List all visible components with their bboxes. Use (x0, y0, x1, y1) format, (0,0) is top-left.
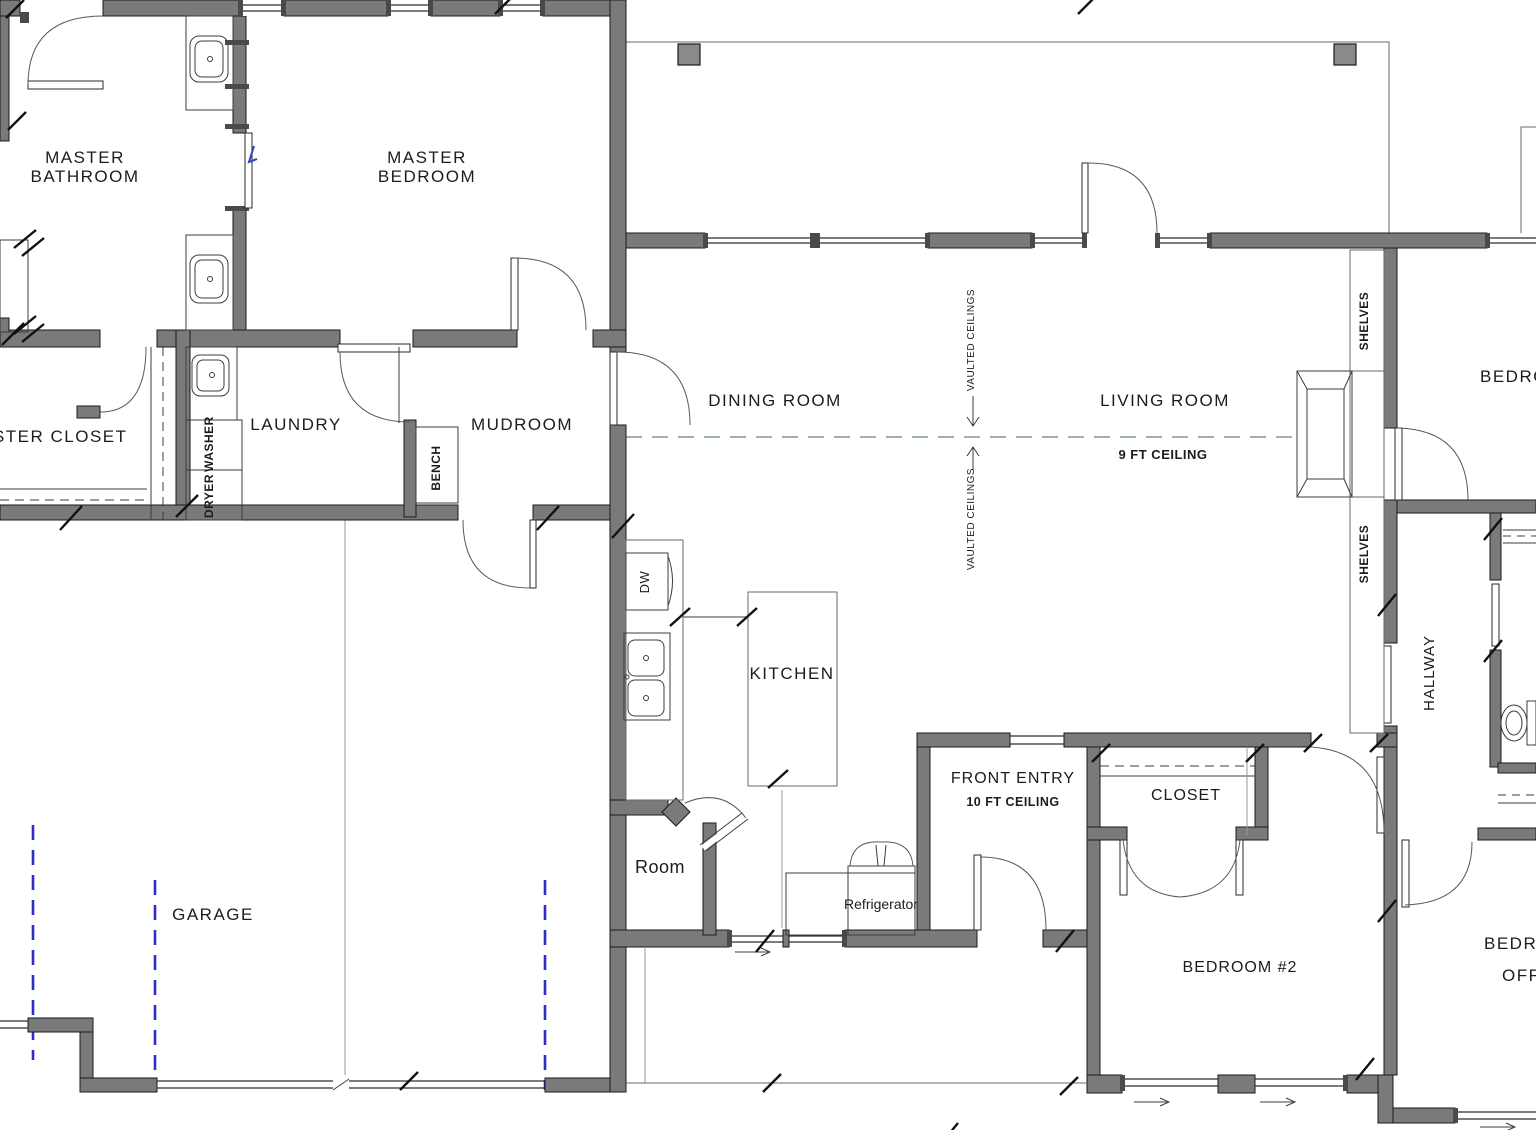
vaulted-ceiling-arrows (967, 396, 979, 470)
room-label-master-bedroom-1: MASTER (387, 148, 467, 167)
floor-plan-svg: MASTER BATHROOM MASTER BEDROOM MASTER CL… (0, 0, 1536, 1130)
walkway-lines (400, 947, 1087, 1092)
room-label-dining-room: DINING ROOM (708, 391, 842, 410)
label-refrigerator: Refrigerator (844, 896, 918, 912)
kitchen-island (748, 592, 837, 786)
label-washer: WASHER (202, 416, 216, 472)
toilet (1501, 701, 1536, 745)
note-10ft-ceiling: 10 FT CEILING (966, 795, 1059, 809)
room-label-front-entry: FRONT ENTRY (951, 770, 1075, 787)
room-label-master-bathroom-1: MASTER (45, 148, 125, 167)
patio-roof-outline (626, 42, 1536, 233)
right-closet-shelves (1498, 530, 1536, 803)
room-label-master-bedroom-2: BEDROOM (378, 167, 476, 186)
room-label-mudroom: MUDROOM (471, 415, 573, 434)
room-label-garage: GARAGE (172, 905, 254, 924)
window-arrows (735, 948, 1515, 1130)
windows (0, 0, 1536, 1123)
room-label-bedroom-2: BEDROOM #2 (1183, 959, 1298, 976)
label-dryer: DRYER (202, 474, 216, 518)
note-9ft-ceiling: 9 FT CEILING (1118, 447, 1207, 462)
refrigerator (786, 842, 915, 935)
label-vaulted-ceilings-top: VAULTED CEILINGS (966, 289, 977, 391)
room-label-master-closet: MASTER CLOSET (0, 427, 128, 446)
room-label-living-room: LIVING ROOM (1100, 391, 1230, 410)
patio-post-icon (678, 44, 700, 65)
label-vaulted-ceilings-bottom: VAULTED CEILINGS (966, 468, 977, 570)
garage-door-tracks (33, 825, 545, 1090)
room-label-closet: CLOSET (1151, 787, 1221, 804)
room-label-bedroom-office-1: BEDROOM (1484, 934, 1536, 953)
floor-plan-page: MASTER BATHROOM MASTER BEDROOM MASTER CL… (0, 0, 1536, 1130)
room-label-bedroom-office-2: OFFICE (1502, 966, 1536, 985)
walls (0, 0, 1536, 1123)
room-label-hallway: HALLWAY (1421, 635, 1438, 711)
label-shelves-top: SHELVES (1357, 292, 1371, 351)
room-label-bedroom-right: BEDROOM (1480, 367, 1536, 386)
room-label-master-bathroom-2: BATHROOM (31, 167, 140, 186)
room-label-laundry: LAUNDRY (250, 415, 341, 434)
room-label-pantry-room: Room (635, 857, 685, 877)
pocket-door (245, 133, 252, 208)
patio-post-icon (1334, 44, 1356, 65)
room-label-kitchen: KITCHEN (749, 664, 834, 683)
label-shelves-bottom: SHELVES (1357, 525, 1371, 584)
garage-door (157, 1079, 545, 1090)
label-dw: DW (637, 570, 652, 593)
label-bench: BENCH (429, 445, 443, 490)
